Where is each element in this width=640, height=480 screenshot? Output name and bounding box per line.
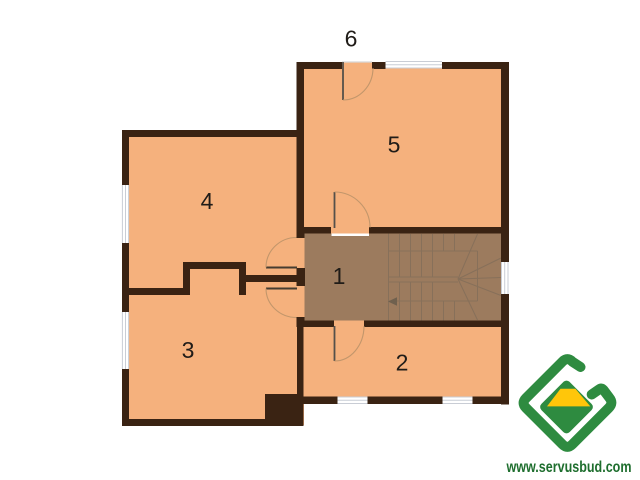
svg-text:1: 1 (333, 263, 346, 289)
svg-text:2: 2 (396, 350, 409, 376)
svg-text:4: 4 (201, 188, 214, 214)
svg-text:3: 3 (182, 337, 195, 363)
svg-text:5: 5 (388, 132, 401, 158)
svg-text:www.servusbud.com: www.servusbud.com (506, 459, 632, 476)
svg-text:6: 6 (345, 26, 358, 52)
